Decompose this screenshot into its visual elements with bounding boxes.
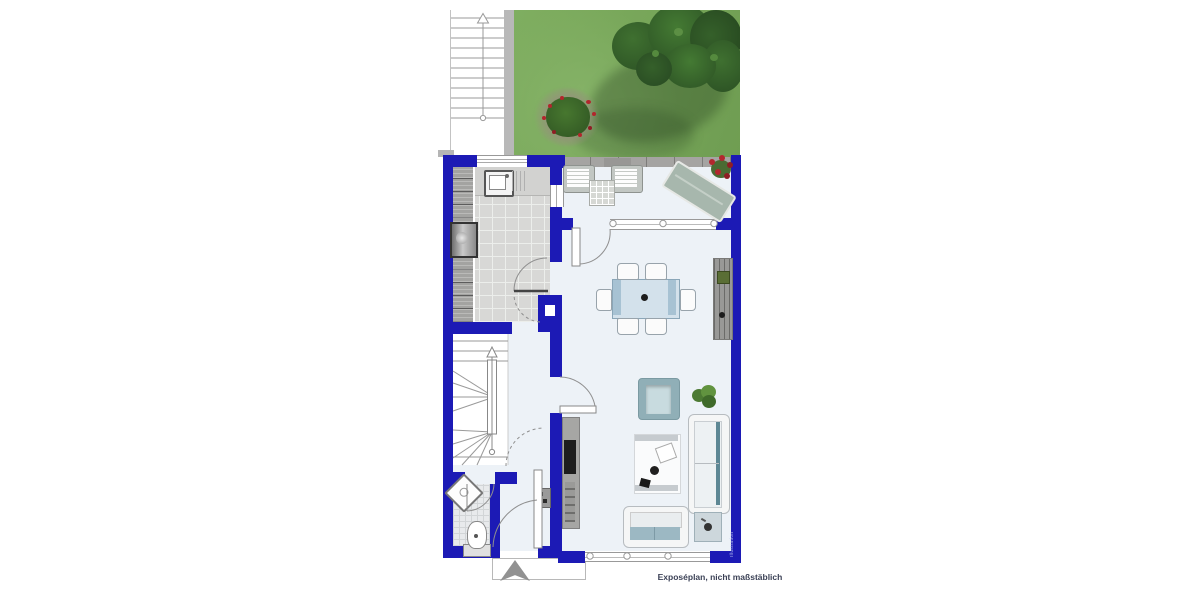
flower-dot	[560, 96, 564, 100]
garden-retaining-strip	[504, 10, 514, 157]
flower-dot	[542, 116, 546, 120]
patio-table	[589, 180, 615, 206]
dining-chair	[645, 263, 667, 280]
dining-chair	[645, 318, 667, 335]
terrace-window-band	[610, 219, 716, 230]
dining-chair	[617, 263, 639, 280]
sideboard-decor	[717, 271, 730, 284]
sideboard-decor	[719, 312, 725, 318]
rug-band	[635, 435, 678, 441]
wall-spine-2	[550, 207, 562, 262]
table-runner	[668, 280, 676, 315]
chair-cushion	[615, 169, 637, 187]
table-runner	[613, 280, 621, 315]
dining-chair	[680, 289, 696, 311]
dining-chair	[596, 289, 612, 311]
kitchen-stove	[450, 222, 478, 258]
basin-bowl	[458, 486, 471, 499]
stairwell-floor	[451, 334, 508, 465]
lowboard-shelves	[565, 482, 575, 522]
sofa-cushion-divider	[695, 463, 719, 464]
wall-dining-top-a	[550, 218, 573, 230]
rack-knob	[543, 499, 547, 503]
wall-living-bottom-a	[558, 551, 585, 563]
wall-kitchen-bottom	[443, 322, 512, 334]
floor-plan-canvas: Exposéplan, nicht maßstäblich Illustrati…	[0, 0, 1200, 600]
living-window-band	[585, 552, 710, 562]
sideboard	[713, 258, 733, 340]
loveseat-cushion-divider	[654, 527, 655, 540]
chimney-flue	[545, 305, 555, 316]
table-decor	[701, 518, 706, 522]
chair-cushion	[567, 169, 589, 187]
sofa-right	[688, 414, 730, 514]
magazine	[655, 442, 677, 463]
stove-burner	[456, 232, 468, 244]
wall-spine-4	[550, 413, 562, 553]
toilet-flush-dot	[474, 534, 478, 538]
dining-chair	[617, 318, 639, 335]
potted-flowers-icon	[706, 155, 734, 183]
tv-screen	[564, 440, 576, 474]
plan-caption: Exposéplan, nicht maßstäblich	[645, 572, 795, 582]
armchair-seat	[646, 385, 671, 414]
kitchen-sink	[484, 170, 514, 197]
tv-lowboard	[562, 417, 580, 529]
toilet-bowl	[467, 521, 487, 549]
rug-item	[650, 466, 659, 475]
sink-tap	[505, 174, 509, 178]
garden-lawn	[514, 10, 740, 160]
side-table	[694, 512, 722, 542]
vertical-watermark: Illustration	[729, 501, 738, 557]
flower-dot	[552, 130, 556, 134]
flower-dot	[592, 112, 596, 116]
kitchen-side-window	[550, 185, 564, 207]
sink-drainer-lines	[512, 171, 528, 191]
dining-table	[612, 279, 680, 319]
rack-knob	[539, 492, 543, 496]
hall-coat-rack	[536, 488, 551, 508]
wall-spine-3	[550, 332, 562, 377]
houseplant-icon	[692, 385, 720, 409]
table-centerpiece	[641, 294, 648, 301]
armchair	[638, 378, 680, 420]
loveseat-cushions	[630, 527, 680, 540]
sink-basin	[489, 175, 506, 190]
flower-dot	[548, 104, 552, 108]
flower-dot	[578, 133, 582, 137]
flower-dot	[586, 100, 591, 104]
wall-spine-1	[550, 155, 562, 185]
loveseat	[623, 506, 689, 548]
exterior-staircase-panel	[450, 10, 505, 157]
wall-wc-top-b	[495, 472, 517, 484]
patio-chair	[611, 165, 643, 193]
table-decor	[704, 523, 712, 531]
rug	[634, 434, 681, 494]
loveseat-back	[630, 512, 682, 528]
flower-dot	[588, 126, 592, 130]
